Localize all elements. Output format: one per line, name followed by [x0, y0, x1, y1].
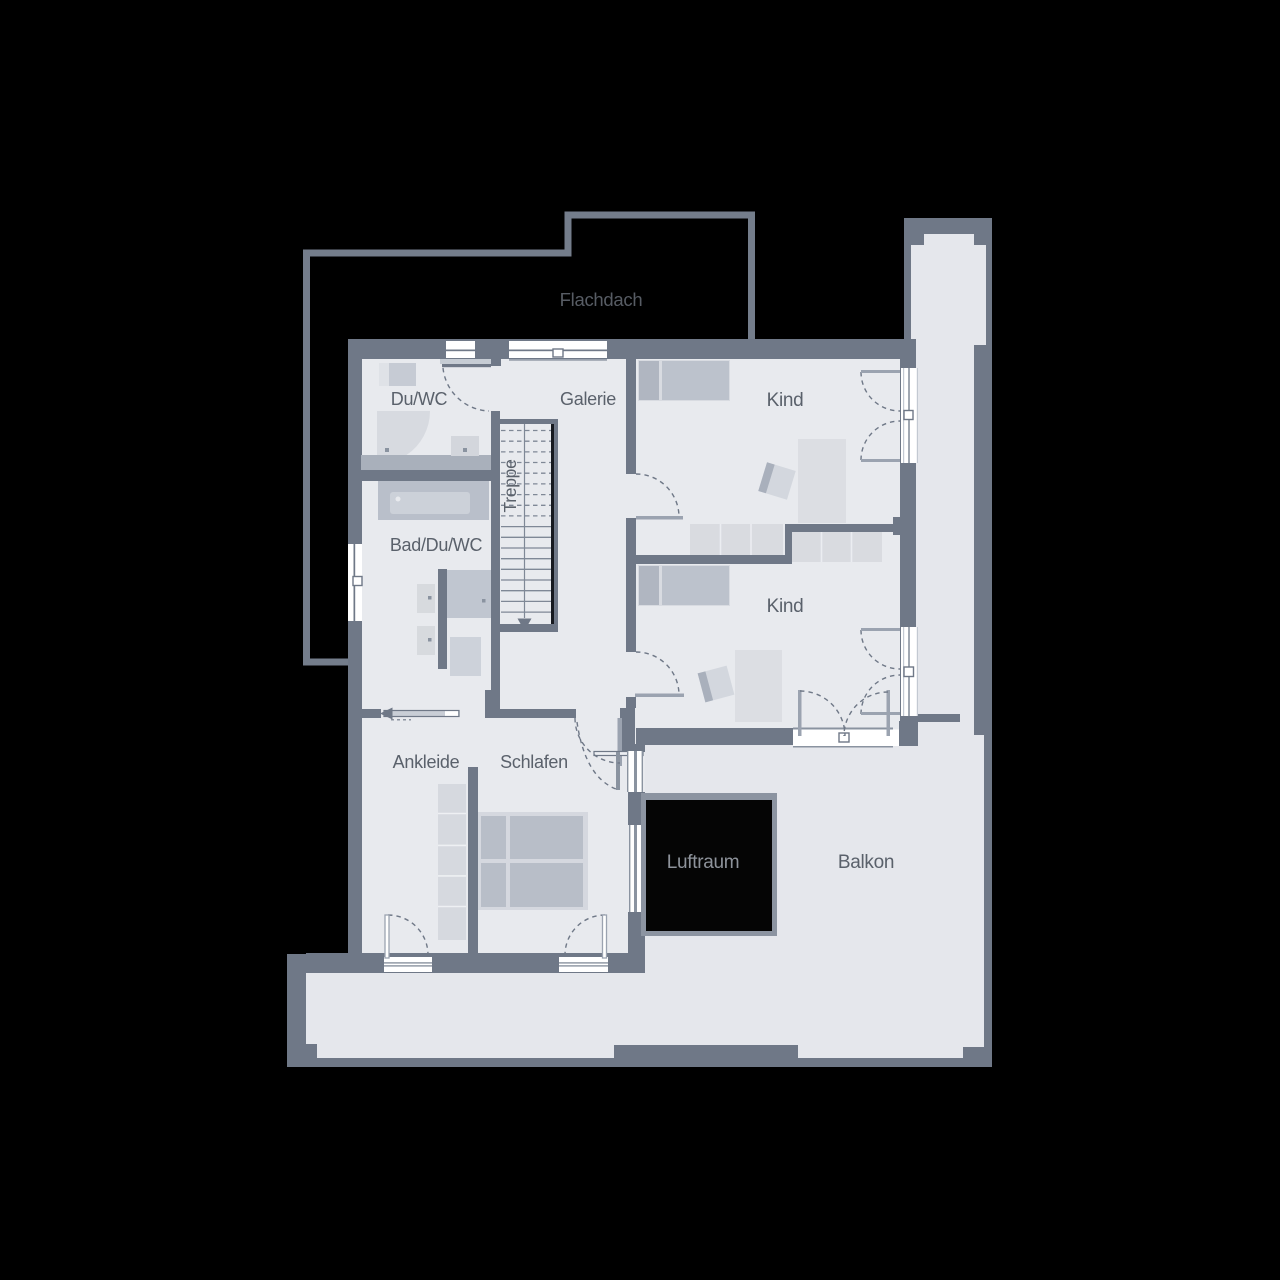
svg-text:Schlafen: Schlafen: [500, 752, 568, 772]
svg-text:Kind: Kind: [767, 390, 804, 411]
svg-text:Galerie: Galerie: [560, 389, 616, 409]
svg-text:Bad/Du/WC: Bad/Du/WC: [390, 535, 483, 555]
svg-text:Flachdach: Flachdach: [560, 289, 643, 310]
svg-text:Luftraum: Luftraum: [667, 852, 740, 873]
svg-text:Treppe: Treppe: [500, 460, 520, 513]
svg-text:Ankleide: Ankleide: [393, 752, 460, 772]
svg-text:Balkon: Balkon: [838, 852, 894, 873]
svg-text:Kind: Kind: [767, 596, 804, 617]
svg-text:Du/WC: Du/WC: [391, 389, 448, 409]
